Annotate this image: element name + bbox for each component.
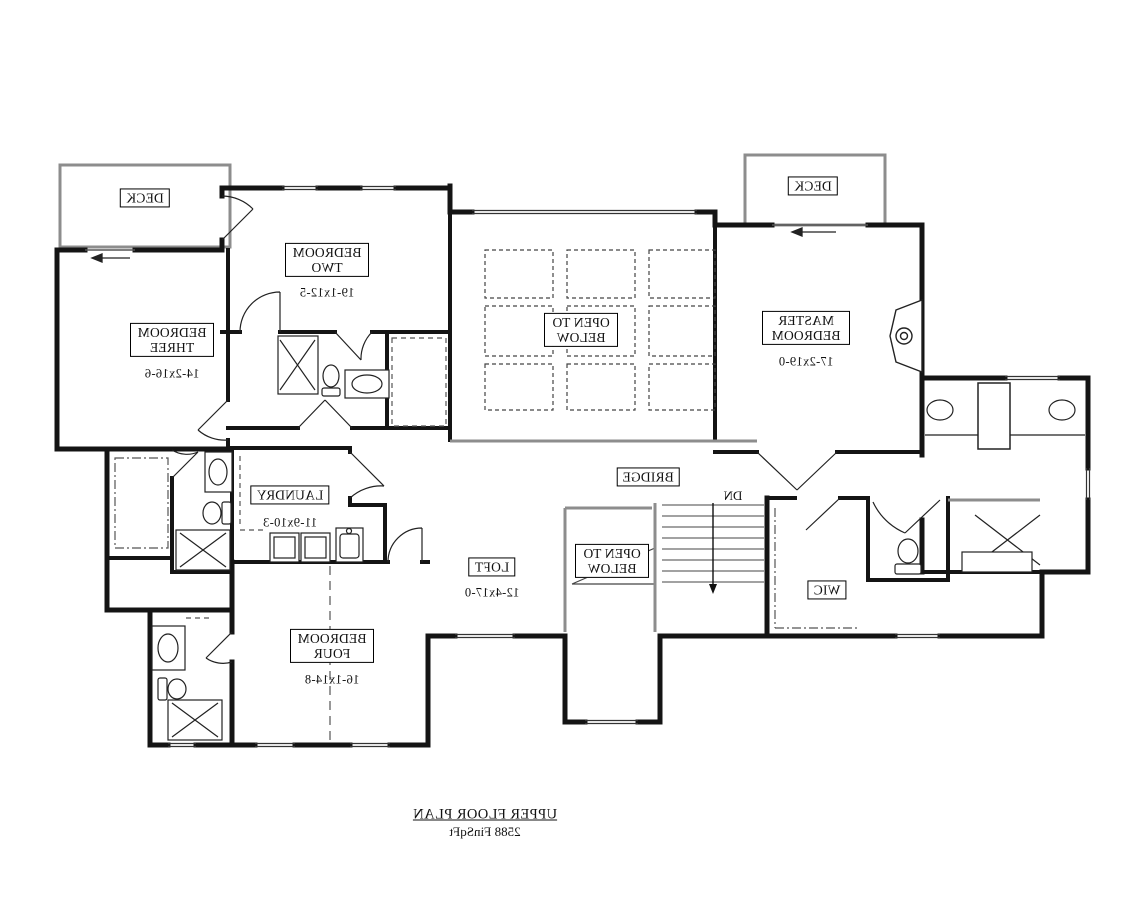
washer-dryer xyxy=(270,533,330,562)
laundry-sink xyxy=(336,528,363,562)
slider-arrow-master-deck xyxy=(792,228,836,236)
attic-dashdot xyxy=(115,458,168,548)
sink-left-bath xyxy=(205,452,232,492)
room-label-deck-left: DECK xyxy=(120,188,170,207)
room-dims-master-bedroom: 17-2x19-0 xyxy=(779,355,834,370)
wic-rod-dashdot xyxy=(775,508,860,628)
sink-bedroom-four-bath xyxy=(152,626,185,670)
room-label-wic: WIC xyxy=(808,580,847,599)
room-dims-bedroom-four: 16-1x14-8 xyxy=(305,673,360,688)
railings xyxy=(450,441,1040,632)
room-label-bridge: BRIDGE xyxy=(616,467,679,486)
toilet-left-bath xyxy=(203,502,231,524)
sheet-title: UPPER FLOOR PLAN xyxy=(413,807,557,824)
shower-left-bath xyxy=(176,530,230,570)
room-label-bedroom-four: BEDROOM FOUR xyxy=(290,629,374,663)
room-dims-laundry: 11-9x10-3 xyxy=(263,516,317,531)
stairs-dn-arrowhead xyxy=(709,584,717,594)
stairs-dn-label: DN xyxy=(724,488,743,504)
toilet-bedroom-four-bath xyxy=(158,678,186,700)
room-label-bedroom-two: BEDROOM TWO xyxy=(285,243,369,277)
room-label-loft: LOFT xyxy=(469,557,516,576)
master-shower xyxy=(962,515,1040,572)
room-label-master-bedroom: MASTER BEDROOM xyxy=(762,311,850,345)
floor-plan-page: DECK BEDROOM TWO 19-1x12-5 BEDROOM THREE… xyxy=(0,0,1148,920)
shower-hall-bath xyxy=(278,336,318,394)
room-label-open-below-upper: OPEN TO BELOW xyxy=(544,313,618,347)
slider-arrow-bedroom-three-deck xyxy=(92,254,130,262)
room-dims-bedroom-two: 19-1x12-5 xyxy=(300,286,355,301)
floor-plan-drawing xyxy=(0,0,1148,920)
sink-hall-bath xyxy=(345,370,389,398)
room-label-laundry: LAUNDRY xyxy=(251,485,330,504)
sheet-area: 2588 FinSqFt xyxy=(449,824,520,840)
master-fireplace xyxy=(890,300,922,372)
room-label-open-below-lower: OPEN TO BELOW xyxy=(575,544,649,578)
shower-bedroom-four-bath xyxy=(168,700,222,740)
room-dims-loft: 12-4x17-0 xyxy=(465,586,520,601)
room-dims-bedroom-three: 14-2x16-6 xyxy=(145,367,200,382)
interior-walls xyxy=(107,188,1042,580)
toilet-hall-bath xyxy=(322,365,340,396)
closet-rod-dashes xyxy=(392,338,446,426)
toilet-water-closet xyxy=(895,539,921,574)
room-label-bedroom-three: BEDROOM THREE xyxy=(130,323,214,357)
room-label-deck-right: DECK xyxy=(788,176,838,195)
master-vanity xyxy=(925,383,1085,449)
deck-outlines xyxy=(60,155,885,247)
